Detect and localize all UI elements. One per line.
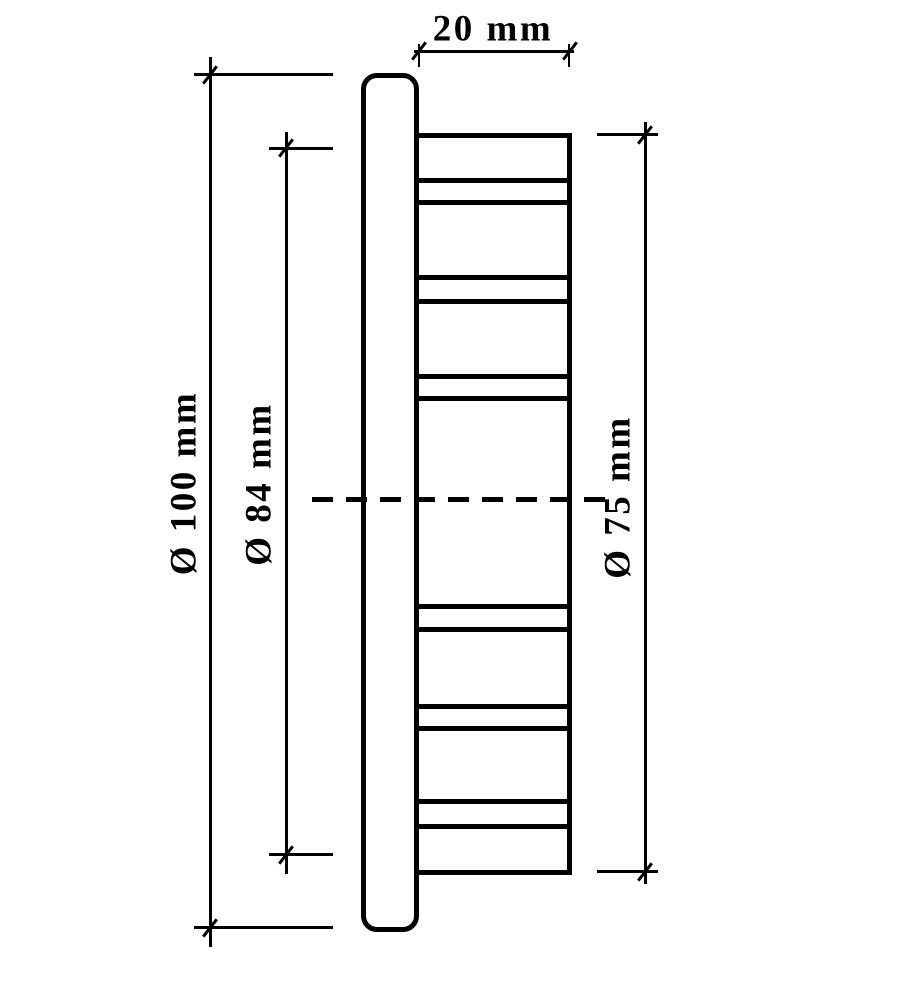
- centerline-dashed: [312, 497, 612, 502]
- rib-line: [419, 374, 572, 379]
- ribbed-body-outline: [419, 133, 572, 875]
- rib-line: [419, 200, 572, 205]
- dim-100-line: [209, 57, 212, 947]
- dim-width-line: [414, 50, 574, 53]
- rib-line: [419, 396, 572, 401]
- rib-line: [419, 627, 572, 632]
- rib-line: [419, 178, 572, 183]
- flange-outline: [361, 73, 419, 932]
- dim-width-label: 20 mm: [433, 11, 553, 48]
- dim-84-ext-bottom: [269, 853, 333, 856]
- rib-line: [419, 704, 572, 709]
- dim-100-ext-top: [194, 73, 333, 76]
- dim-84-ext-top: [269, 147, 333, 150]
- dim-75-ext-bottom: [597, 870, 658, 873]
- dim-75-line: [644, 122, 647, 884]
- dim-75-ext-top: [597, 133, 658, 136]
- dim-75-label: Ø 75 mm: [600, 415, 637, 578]
- dim-100-label: Ø 100 mm: [166, 391, 203, 575]
- dim-100-ext-bottom: [194, 926, 333, 929]
- rib-line: [419, 824, 572, 829]
- dim-84-label: Ø 84 mm: [241, 402, 278, 565]
- rib-line: [419, 604, 572, 609]
- rib-line: [419, 799, 572, 804]
- rib-line: [419, 726, 572, 731]
- dim-84-line: [285, 132, 288, 874]
- rib-line: [419, 299, 572, 304]
- technical-drawing-canvas: 20 mm Ø 100 mm Ø 84 mm Ø 75 mm: [0, 0, 920, 1000]
- rib-line: [419, 275, 572, 280]
